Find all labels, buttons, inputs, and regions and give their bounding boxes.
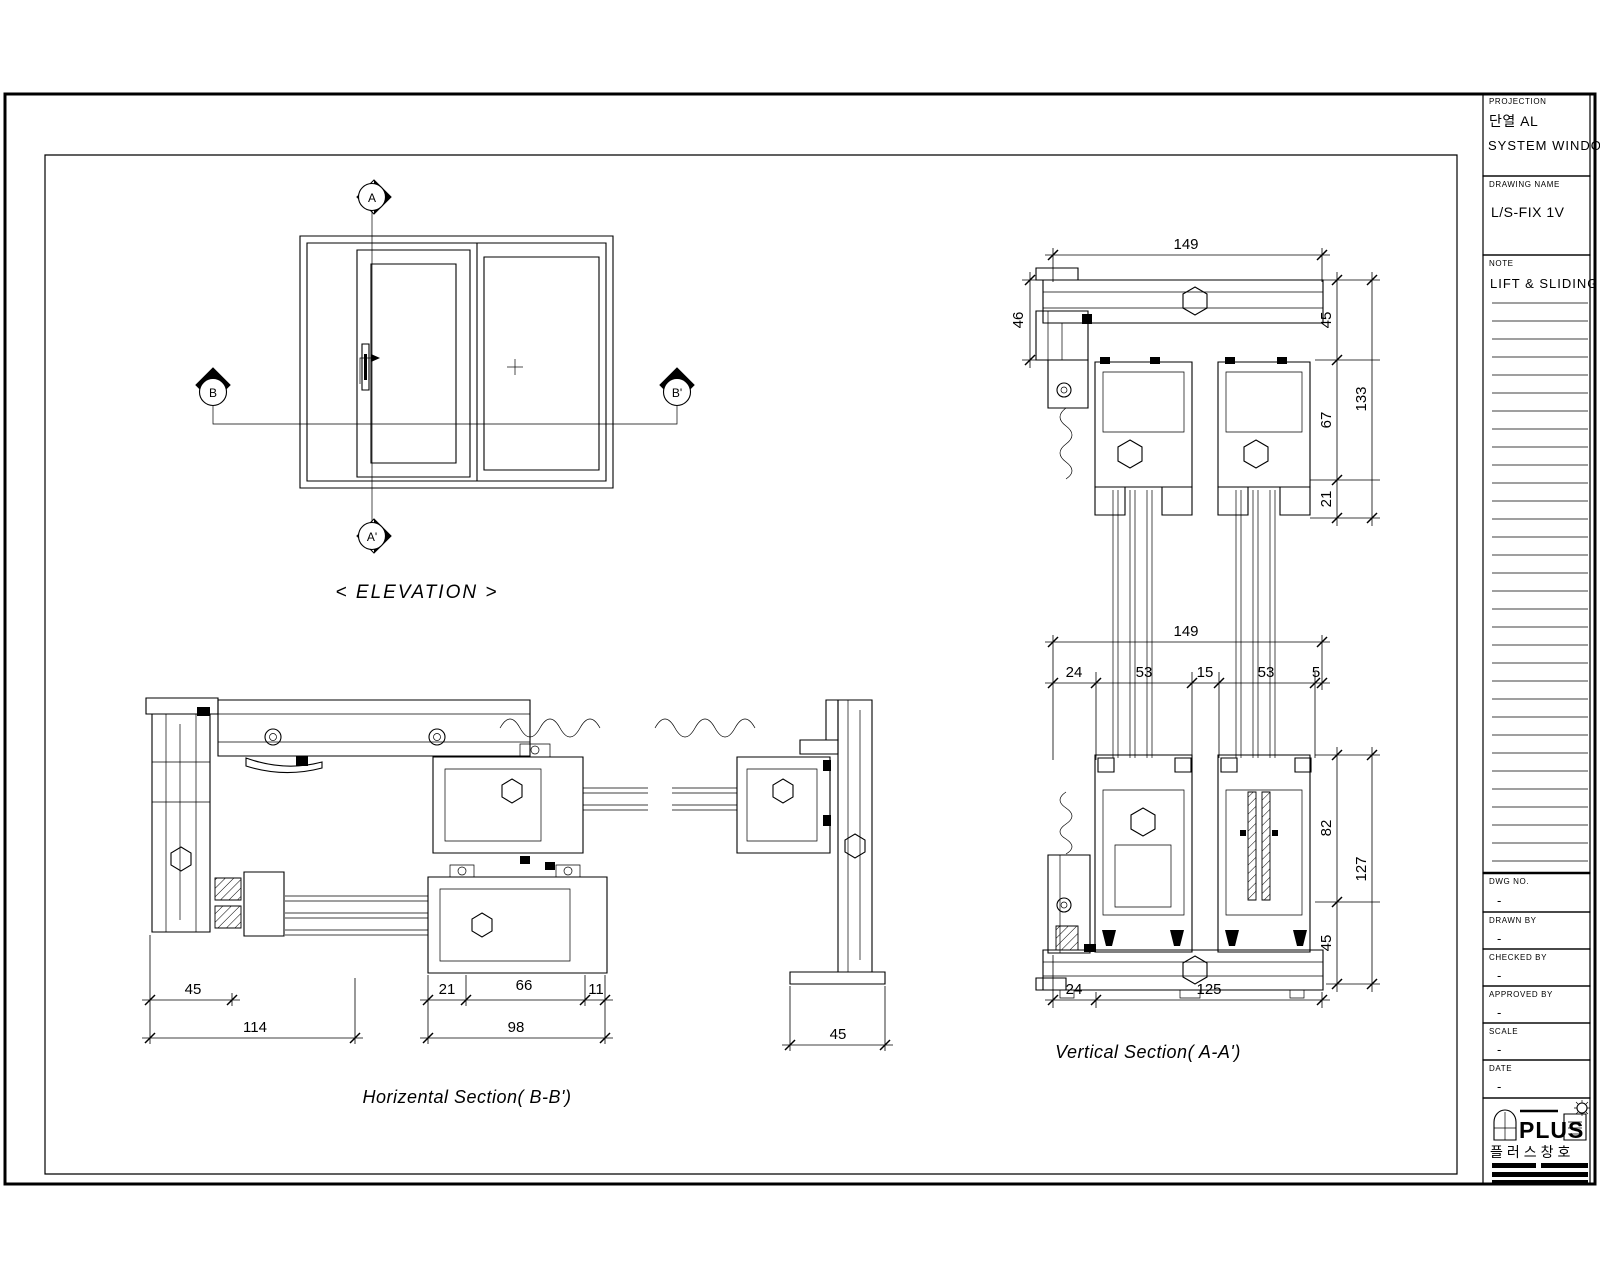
hsec-lower-glass bbox=[285, 896, 428, 935]
section-marker-a-prime: A' bbox=[357, 519, 391, 553]
vertical-section-view: 149 46 45 67 21 133 149 24 53 bbox=[1010, 236, 1380, 1062]
projection-line2: SYSTEM WINDOWS bbox=[1488, 138, 1600, 153]
marker-b-label: B bbox=[209, 386, 217, 400]
sash-handle bbox=[362, 344, 369, 390]
vsec-bottom-wave bbox=[1060, 792, 1072, 854]
drawing-name-value: L/S-FIX 1V bbox=[1491, 204, 1565, 220]
hsec-dims-middle: 21 66 11 98 bbox=[420, 975, 613, 1044]
dwg-no-value: - bbox=[1497, 893, 1502, 908]
vsec-dim-149-top: 149 bbox=[1173, 236, 1198, 253]
vertical-section-title: Vertical Section( A-A') bbox=[1055, 1042, 1241, 1062]
scale-label: SCALE bbox=[1489, 1027, 1518, 1036]
hsec-upper-hex-right bbox=[773, 779, 793, 803]
vsec-interlock-brush-1 bbox=[1248, 792, 1256, 900]
vsec-sill-roller bbox=[1056, 926, 1078, 950]
hsec-break-wave-2 bbox=[655, 719, 755, 737]
projection-label: PROJECTION bbox=[1489, 97, 1547, 106]
vsec-dim-125: 125 bbox=[1196, 981, 1221, 998]
vsec-dim-45-top: 45 bbox=[1318, 312, 1335, 329]
hsec-glazing-gasket-1 bbox=[215, 878, 241, 900]
drawing-sheet: A A' B B' < ELEVATION > bbox=[0, 0, 1600, 1280]
vsec-dim-53-a: 53 bbox=[1136, 664, 1153, 681]
hsec-right-jamb bbox=[790, 700, 885, 984]
vsec-dim-24: 24 bbox=[1066, 664, 1083, 681]
fixed-panel-glass bbox=[484, 257, 599, 470]
vsec-dim-21: 21 bbox=[1318, 491, 1335, 508]
hsec-dim-21: 21 bbox=[439, 981, 456, 998]
hsec-upper-glass bbox=[583, 788, 737, 810]
vsec-top-hex-right bbox=[1244, 440, 1268, 468]
vsec-sill bbox=[1036, 792, 1323, 998]
vsec-roller-4 bbox=[1293, 930, 1307, 946]
horizontal-section-title: Horizental Section( B-B') bbox=[362, 1087, 571, 1107]
vsec-dim-149-mid: 149 bbox=[1173, 623, 1198, 640]
sliding-direction-mark bbox=[360, 354, 380, 384]
hsec-dim-11: 11 bbox=[588, 981, 604, 998]
vsec-dim-45-bottom: 45 bbox=[1318, 935, 1335, 952]
title-block: PROJECTION 단열 AL SYSTEM WINDOWS DRAWING … bbox=[1483, 94, 1600, 1184]
cad-drawing-canvas: A A' B B' < ELEVATION > bbox=[0, 0, 1600, 1280]
approved-by-value: - bbox=[1497, 1005, 1502, 1020]
scale-value: - bbox=[1497, 1042, 1502, 1057]
vsec-dims-bottom: 24 125 bbox=[1045, 955, 1330, 1008]
vsec-sill-hex bbox=[1183, 956, 1207, 984]
title-block-projection-box bbox=[1483, 94, 1590, 176]
logo-plus-text: PLUS bbox=[1519, 1117, 1584, 1143]
drawn-by-value: - bbox=[1497, 931, 1502, 946]
vsec-top-hex-left bbox=[1118, 440, 1142, 468]
hsec-roller-2 bbox=[429, 729, 445, 745]
vsec-dim-15: 15 bbox=[1197, 664, 1214, 681]
elevation-view: A A' B B' < ELEVATION > bbox=[196, 180, 694, 603]
vsec-dims-mid: 149 24 53 15 53 5 bbox=[1045, 623, 1330, 760]
note-ruled-lines bbox=[1492, 303, 1588, 861]
marker-a-prime-label: A' bbox=[367, 530, 377, 544]
vsec-interlock-brush-2 bbox=[1262, 792, 1270, 900]
marker-a-label: A bbox=[368, 191, 376, 205]
vsec-roller-3 bbox=[1225, 930, 1239, 946]
vsec-dim-5: 5 bbox=[1312, 664, 1320, 681]
hsec-upper-hex-left bbox=[502, 779, 522, 803]
vsec-dim-133: 133 bbox=[1353, 386, 1370, 411]
marker-b-prime-label: B' bbox=[672, 386, 682, 400]
hsec-left-jamb bbox=[146, 698, 218, 932]
vsec-head-screw bbox=[1057, 383, 1071, 397]
hsec-lever bbox=[246, 758, 322, 773]
date-value: - bbox=[1497, 1079, 1502, 1094]
hsec-dim-66: 66 bbox=[516, 977, 533, 994]
fixed-center-mark bbox=[507, 359, 523, 375]
logo-window-icon bbox=[1494, 1110, 1516, 1140]
hsec-roller-1 bbox=[265, 729, 281, 745]
vsec-dim-67: 67 bbox=[1318, 412, 1335, 429]
company-logo: PLUS 플러스창호 bbox=[1490, 1100, 1590, 1184]
logo-korean-text: 플러스창호 bbox=[1490, 1144, 1574, 1160]
vsec-dim-127: 127 bbox=[1353, 856, 1370, 881]
vsec-bottom-hex-left bbox=[1131, 808, 1155, 836]
hsec-head-strip bbox=[218, 700, 530, 773]
section-marker-b: B bbox=[196, 368, 230, 406]
approved-by-label: APPROVED BY bbox=[1489, 990, 1553, 999]
hsec-lower-row bbox=[215, 865, 607, 973]
hsec-right-jamb-foot bbox=[790, 972, 885, 984]
vsec-top-wave bbox=[1060, 408, 1072, 479]
checked-by-label: CHECKED BY bbox=[1489, 953, 1547, 962]
section-line-b bbox=[213, 406, 677, 424]
note-label: NOTE bbox=[1489, 259, 1514, 268]
vsec-sill-screw bbox=[1057, 898, 1071, 912]
date-label: DATE bbox=[1489, 1064, 1512, 1073]
projection-line1: 단열 AL bbox=[1489, 113, 1538, 129]
hsec-dim-114: 114 bbox=[243, 1019, 267, 1036]
vsec-dim-46: 46 bbox=[1010, 312, 1027, 329]
vsec-head bbox=[1036, 268, 1323, 479]
vsec-dim-82: 82 bbox=[1318, 820, 1335, 837]
dwg-no-label: DWG NO. bbox=[1489, 877, 1529, 886]
drawing-name-label: DRAWING NAME bbox=[1489, 180, 1560, 189]
elevation-title: < ELEVATION > bbox=[336, 582, 499, 603]
hsec-dims-left: 45 114 bbox=[142, 935, 363, 1044]
vsec-top-sashes bbox=[1095, 357, 1310, 515]
vsec-roller-1 bbox=[1102, 930, 1116, 946]
sliding-sash-frame bbox=[357, 250, 470, 477]
hsec-jamb-hex bbox=[171, 847, 191, 871]
vsec-dim-24-bottom: 24 bbox=[1066, 981, 1083, 998]
hsec-break-wave-1 bbox=[500, 719, 600, 737]
vsec-head-hex bbox=[1183, 287, 1207, 315]
section-marker-b-prime: B' bbox=[660, 368, 694, 406]
note-value: LIFT & SLIDING bbox=[1490, 276, 1598, 291]
vsec-bottom-sashes bbox=[1095, 755, 1311, 952]
title-block-note-box bbox=[1483, 255, 1590, 873]
horizontal-section-view: 45 114 21 66 11 98 45 Horizental Section… bbox=[142, 698, 893, 1107]
vsec-dim-53-b: 53 bbox=[1258, 664, 1275, 681]
section-marker-a: A bbox=[357, 180, 391, 214]
drawn-by-label: DRAWN BY bbox=[1489, 916, 1537, 925]
sliding-sash-glass bbox=[371, 264, 456, 463]
vsec-roller-2 bbox=[1170, 930, 1184, 946]
hsec-dim-45-left: 45 bbox=[185, 981, 202, 998]
hsec-lower-hex bbox=[472, 913, 492, 937]
hsec-dim-98: 98 bbox=[508, 1019, 525, 1036]
checked-by-value: - bbox=[1497, 968, 1502, 983]
hsec-dim-45-right: 45 bbox=[830, 1026, 847, 1043]
hsec-glazing-gasket-2 bbox=[215, 906, 241, 928]
hsec-upper-row bbox=[433, 744, 831, 870]
hsec-dims-right: 45 bbox=[782, 986, 893, 1051]
vsec-dims-bottom-right: 82 45 127 bbox=[1315, 747, 1380, 992]
